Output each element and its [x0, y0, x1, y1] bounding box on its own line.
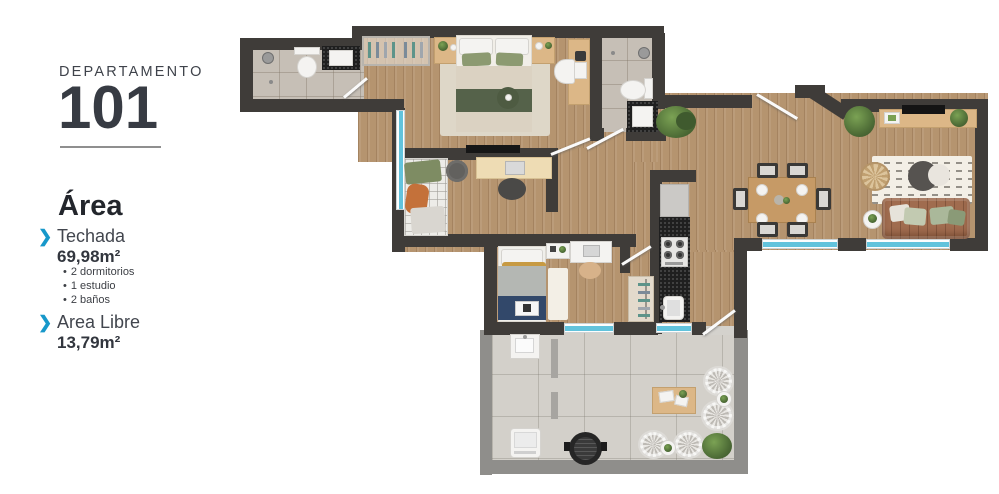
paper-icon [658, 390, 674, 403]
laptop-icon [583, 245, 600, 257]
terrace-divider [551, 392, 558, 419]
terrace-wall-right [734, 330, 748, 474]
decor-icon [550, 246, 556, 252]
nightstand-icon [530, 37, 555, 64]
hanger-icon [404, 42, 407, 58]
faucet-icon [660, 305, 665, 310]
pillow-icon [462, 52, 492, 66]
terrace-divider [551, 339, 558, 378]
chevron-icon: ❯ [38, 228, 52, 245]
wall [590, 36, 602, 140]
hanger-icon [420, 42, 423, 58]
burner-icon [676, 251, 684, 259]
fridge-icon [660, 184, 689, 217]
window [762, 239, 838, 249]
area-heading: Área [58, 190, 123, 223]
toilet-icon [294, 47, 320, 55]
burner-icon [664, 251, 672, 259]
covered-value: 69,98m² [57, 247, 120, 267]
plant-icon [868, 214, 877, 223]
wall [838, 238, 866, 251]
toilet-icon [297, 56, 317, 78]
covered-detail-text: 1 estudio [71, 280, 116, 292]
chair-icon [554, 59, 575, 84]
rug-icon [548, 268, 568, 320]
sink-icon [329, 50, 353, 66]
shower-head-icon [638, 47, 650, 59]
magazine-icon [523, 304, 531, 312]
washing-machine-icon [514, 432, 537, 448]
dining-chair-icon [757, 163, 778, 178]
chair-icon [579, 262, 601, 279]
pouf-icon [446, 160, 468, 182]
dining-chair-icon [816, 188, 831, 210]
toilet-icon [620, 80, 646, 100]
plant-icon [679, 390, 687, 398]
stove-controls-icon [665, 262, 683, 265]
plant-icon [676, 112, 696, 130]
bbq-grill-icon [574, 437, 597, 460]
wall [240, 99, 404, 112]
floorplan-page: DEPARTAMENTO 101 Área ❯ Techada 69,98m² … [0, 0, 999, 494]
sink-icon [632, 106, 653, 127]
tv-icon [466, 145, 520, 153]
laundry-sink-icon [515, 338, 534, 353]
shower-head-icon [262, 52, 274, 64]
pillow-icon [496, 52, 524, 66]
dining-chair-icon [787, 163, 808, 178]
decor-icon [928, 164, 950, 186]
hanger-icon [638, 314, 650, 317]
wall [484, 240, 497, 335]
blanket-icon [410, 206, 446, 234]
divider-rule [60, 146, 161, 148]
kitchen-sink-icon [667, 300, 680, 316]
floor-drain-icon [269, 80, 273, 84]
covered-label: Techada [57, 226, 125, 247]
plant-icon [950, 109, 968, 127]
window [866, 239, 950, 249]
floor-drain-icon [611, 51, 615, 55]
pillow-icon [947, 209, 966, 226]
tv-icon [902, 105, 945, 114]
wall [734, 245, 747, 338]
pillow-icon [903, 207, 926, 226]
dining-chair-icon [787, 222, 808, 237]
covered-detail-2: •1 estudio [63, 280, 116, 292]
plant-icon [438, 41, 448, 51]
hanger-icon [392, 42, 395, 58]
covered-detail-1: •2 dormitorios [63, 266, 134, 278]
plant-icon [559, 246, 566, 253]
bed-throw-icon [456, 89, 532, 112]
plate-icon [796, 184, 808, 196]
plant-icon [720, 395, 728, 403]
bag-icon [575, 51, 586, 61]
covered-detail-text: 2 dormitorios [71, 266, 135, 278]
free-area-label: Area Libre [57, 312, 140, 333]
wall [652, 95, 752, 108]
basket-pouf-icon [860, 162, 890, 191]
hanger-icon [368, 42, 371, 58]
plant-icon [545, 42, 552, 49]
office-chair-icon [498, 178, 526, 200]
plate-icon [756, 184, 768, 196]
dining-chair-icon [757, 222, 778, 237]
hanger-icon [638, 283, 650, 286]
lamp-icon [535, 42, 543, 50]
bullet-icon: • [63, 294, 67, 306]
plant-icon [783, 197, 790, 204]
hanger-icon [638, 291, 650, 294]
bullet-icon: • [63, 266, 67, 278]
bullet-icon: • [63, 280, 67, 292]
covered-detail-text: 2 baños [71, 294, 110, 306]
unit-number: 101 [58, 78, 158, 138]
hanger-icon [384, 42, 387, 58]
plant-icon [664, 444, 672, 452]
terrace-wall-bottom [480, 460, 748, 474]
pillow-icon [404, 159, 442, 185]
hanger-icon [638, 307, 650, 310]
laptop-icon [505, 161, 525, 175]
outdoor-chair-icon [673, 430, 704, 459]
hanger-icon [412, 42, 415, 58]
wall [650, 170, 696, 182]
window [656, 323, 692, 333]
covered-detail-3: •2 baños [63, 294, 110, 306]
round-pillow-icon [505, 94, 512, 101]
wall [950, 238, 988, 251]
burner-icon [664, 240, 672, 248]
washer-controls-icon [514, 451, 536, 454]
plant-icon [844, 106, 875, 137]
burner-icon [676, 240, 684, 248]
hanger-icon [638, 299, 650, 302]
free-area-value: 13,79m² [57, 333, 120, 353]
plant-icon [702, 433, 732, 459]
duvet-icon [498, 266, 546, 298]
chevron-icon: ❯ [38, 314, 52, 331]
dining-chair-icon [733, 188, 748, 210]
picture-frame-icon [888, 115, 896, 121]
grill-handle-icon [601, 442, 607, 451]
hanger-icon [376, 42, 379, 58]
terrace-wall-left [480, 330, 492, 475]
grill-handle-icon [564, 442, 570, 451]
window [564, 323, 614, 333]
faucet-icon [523, 335, 527, 339]
